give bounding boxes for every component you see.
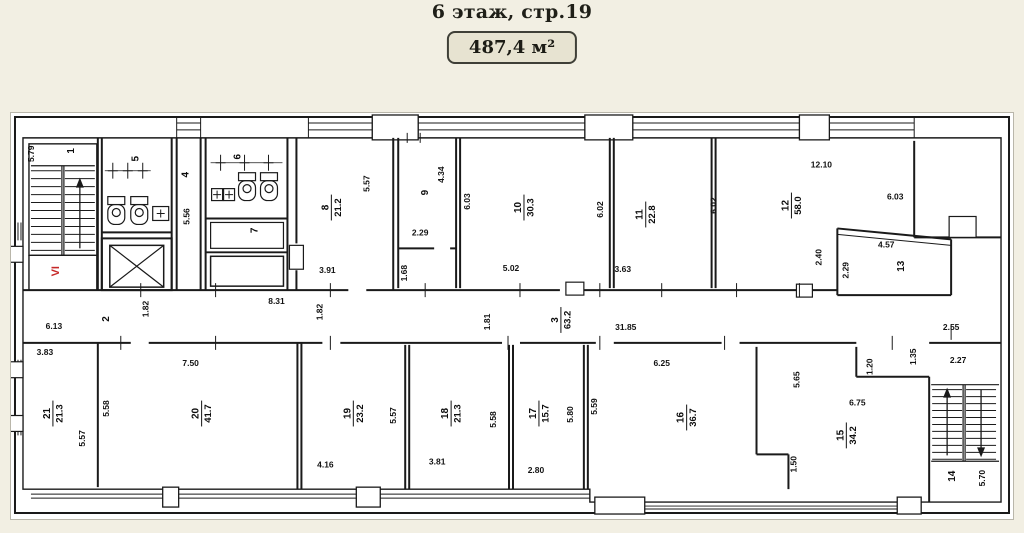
dimension-label: 1.35 [908,348,918,365]
dimension-label: 3.63 [615,264,632,274]
dimension-label: 6.13 [46,321,63,331]
dimension-label: 1.50 [788,456,798,473]
room-label: 1030.3 [513,195,536,221]
dimension-label: 5.79 [26,145,36,162]
floor-title: 6 этаж, стр.19 [0,0,1024,23]
dimension-label: 4.57 [878,239,895,249]
floor-plan-drawing: 5.795.573.915.564.342.291.686.035.026.02… [11,113,1013,519]
room-number: 10 [513,202,524,214]
room-label: 1715.7 [528,401,551,427]
area-badge: 487,4 м² [447,31,577,64]
room-number: 19 [342,408,353,420]
dimension-label: 6.02 [709,197,719,214]
dimension-label: 5.70 [977,470,987,487]
wc-room-5 [105,163,169,225]
dimension-label: 1.81 [482,313,492,330]
room-label: 1821.3 [440,401,463,427]
room-area: 21.2 [333,198,344,216]
dimension-label: 4.16 [317,459,334,469]
room-area: 36.7 [688,408,699,426]
room-area: 21.3 [54,404,65,422]
room-number: 11 [635,209,646,220]
room-label: 1122.8 [635,202,658,228]
room-number: 12 [780,200,791,212]
room-area: 15.7 [540,404,551,422]
stairwell-1 [29,144,97,290]
dimension-label: 5.02 [503,263,520,273]
dimension-label: 6.25 [653,358,670,368]
dimension-label: 5.80 [565,406,575,423]
room-number: 5 [131,156,142,162]
room-area: 41.7 [203,404,214,422]
room-number: 4 [181,171,192,177]
dimension-label: 2.27 [950,355,967,365]
plan-labels: 5.795.573.915.564.342.291.686.035.026.02… [26,145,987,486]
dimension-label: 2.29 [412,227,429,237]
room7-storage [211,222,284,286]
room-number: 3 [550,317,561,323]
room-number: 8 [320,204,331,210]
room-number: 15 [835,429,846,441]
room-label: 1258.0 [780,193,803,219]
room-number: 1 [66,148,77,154]
room-label: 1923.2 [342,401,365,427]
room-number: 2 [101,316,112,322]
room-label: 363.2 [550,307,573,333]
dimension-label: 6.03 [462,193,472,210]
dimension-label: 2.29 [840,262,850,279]
wc-room-6 [211,155,283,201]
room-label: 1534.2 [835,422,858,448]
room-number: 17 [528,408,539,420]
dimension-label: 5.65 [791,371,801,388]
dimension-label: 2.55 [943,322,960,332]
room-label: 821.2 [320,195,343,221]
room-area: 58.0 [793,196,804,214]
room-number: 21 [42,408,53,420]
dimension-label: 6.75 [849,398,866,408]
room-area: 30.3 [525,198,536,216]
dimension-label: 3.81 [429,456,446,466]
dimension-label: 5.57 [388,407,398,424]
dimension-label: 5.58 [101,400,111,417]
room-number: 20 [191,408,202,420]
dimension-label: 5.56 [182,208,192,225]
dimension-label: 6.02 [595,201,605,218]
room-area: 21.3 [453,404,464,422]
dimension-label: 1.68 [399,265,409,282]
room-area: 63.2 [562,311,573,329]
dimension-label: 12.10 [811,160,833,170]
dimension-label: 7.50 [182,358,199,368]
room-number: 7 [249,227,260,233]
floor-plan: 5.795.573.915.564.342.291.686.035.026.02… [10,112,1014,520]
dimension-label: 1.20 [864,358,874,375]
dimension-label: 5.57 [361,175,371,192]
room-label: 2121.3 [42,401,65,427]
dimension-label: 8.31 [268,296,285,306]
dimension-label: 2.40 [813,249,823,266]
dimension-label: 5.57 [77,430,87,447]
room-area: 34.2 [848,426,859,444]
stairwell-14 [931,385,999,462]
room-area: 22.8 [647,205,658,223]
room-label: 1636.7 [676,405,699,431]
dimension-label: 3.83 [37,347,54,357]
dimension-label: 1.82 [314,304,324,321]
dimension-label: 5.59 [589,398,599,415]
room-number: 6 [233,154,244,160]
dimension-label: 6.03 [887,192,904,202]
dimension-label: 5.58 [488,411,498,428]
room-number: 13 [896,260,907,272]
interior-walls [23,138,1001,502]
dimension-label: 1.82 [141,301,151,318]
dimension-label: 4.34 [436,166,446,183]
room-area: 23.2 [355,404,366,422]
room-number: 9 [420,189,431,195]
floor-number-marker: VI [50,266,62,276]
room-number: 14 [947,470,958,482]
elevator [102,238,172,290]
room-label: 2041.7 [191,401,214,427]
room-number: 18 [440,408,451,420]
dimension-label: 31.85 [615,322,637,332]
room-number: 16 [676,412,687,424]
dimension-label: 3.91 [319,265,336,275]
dimension-label: 2.80 [528,465,545,475]
